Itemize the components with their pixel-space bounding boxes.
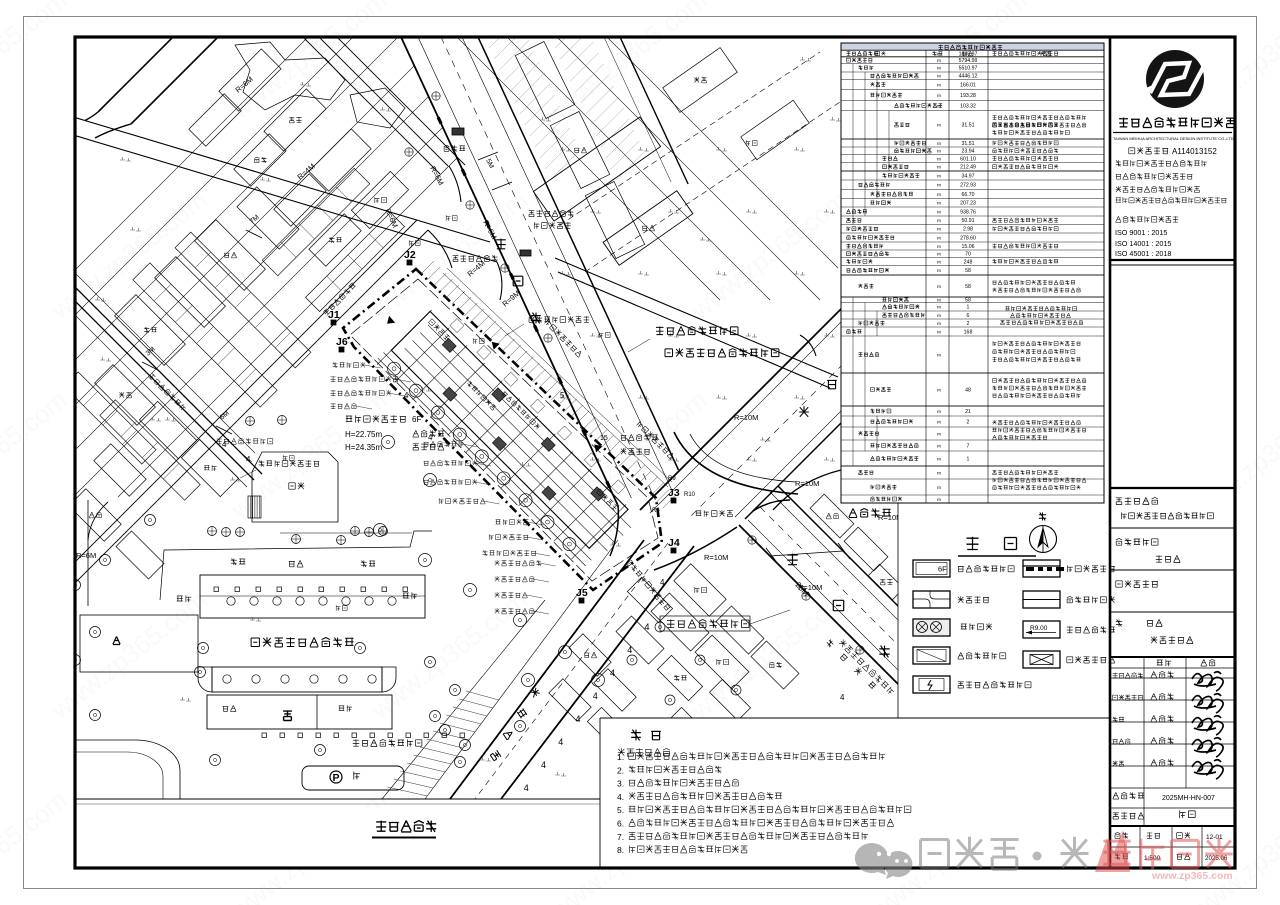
svg-text:31.51: 31.51 [962, 123, 975, 129]
svg-text:J6: J6 [336, 336, 348, 348]
svg-text:m: m [937, 150, 941, 155]
svg-text:4: 4 [428, 433, 433, 442]
svg-text:m: m [937, 166, 941, 171]
svg-text:m: m [937, 444, 941, 449]
svg-text:1.: 1. [617, 752, 624, 762]
svg-text:H=22.75m: H=22.75m [345, 430, 382, 439]
svg-text:272.93: 272.93 [960, 183, 976, 189]
svg-text:4: 4 [660, 578, 665, 587]
svg-text:2: 2 [967, 419, 970, 425]
svg-text:8.: 8. [617, 845, 624, 855]
svg-text:3.: 3. [617, 779, 624, 789]
svg-text:R9: R9 [668, 476, 676, 482]
svg-text:J3: J3 [668, 487, 680, 499]
svg-text:m: m [937, 236, 941, 241]
svg-text:193.28: 193.28 [960, 93, 976, 99]
svg-text:4: 4 [524, 783, 529, 793]
svg-text:m: m [937, 486, 941, 491]
svg-text:6F: 6F [938, 565, 947, 574]
svg-text:23.94: 23.94 [962, 149, 975, 155]
svg-text:4: 4 [541, 760, 546, 770]
svg-text:A114013152: A114013152 [1172, 147, 1217, 156]
svg-text:m: m [937, 498, 941, 503]
svg-text:6: 6 [967, 313, 970, 319]
svg-text:5794.99: 5794.99 [959, 58, 978, 64]
svg-text:m: m [937, 245, 941, 250]
svg-text:4: 4 [558, 737, 563, 747]
svg-text:m: m [937, 124, 941, 129]
svg-text:m: m [937, 322, 941, 327]
svg-text:2: 2 [967, 321, 970, 327]
svg-text:J4: J4 [668, 537, 680, 549]
svg-text:58: 58 [965, 298, 971, 304]
svg-text:58: 58 [965, 268, 971, 274]
svg-text:4.: 4. [617, 792, 624, 802]
svg-text:R=6M: R=6M [76, 551, 96, 560]
svg-text:212.49: 212.49 [960, 165, 976, 171]
svg-text:15: 15 [600, 435, 608, 442]
svg-text:207.23: 207.23 [960, 201, 976, 207]
svg-text:48: 48 [965, 387, 971, 393]
svg-text:m: m [937, 269, 941, 274]
svg-text:7.: 7. [617, 832, 624, 842]
svg-text:m: m [937, 420, 941, 425]
svg-text:1: 1 [967, 456, 970, 462]
svg-text:m: m [937, 75, 941, 80]
svg-text:P: P [332, 772, 339, 784]
svg-text:938.76: 938.76 [960, 209, 976, 215]
svg-text:4: 4 [222, 440, 227, 449]
svg-text:m: m [937, 285, 941, 290]
svg-text:R=10M: R=10M [704, 553, 728, 562]
svg-text:m: m [937, 59, 941, 64]
svg-text:R9.00: R9.00 [1030, 625, 1048, 632]
svg-text:m: m [937, 184, 941, 189]
svg-text:4: 4 [404, 391, 409, 400]
svg-text:m: m [937, 299, 941, 304]
svg-text:4: 4 [593, 691, 598, 701]
svg-text:J5: J5 [576, 587, 588, 599]
svg-text:m: m [937, 157, 941, 162]
svg-text:m: m [937, 432, 941, 437]
svg-text:21: 21 [965, 409, 971, 415]
svg-text:R=10M: R=10M [734, 413, 758, 422]
svg-text:m: m [937, 228, 941, 233]
svg-text:103.32: 103.32 [960, 103, 976, 109]
svg-text:4446.12: 4446.12 [959, 74, 978, 80]
svg-text:m: m [937, 210, 941, 215]
svg-text:m: m [937, 67, 941, 72]
svg-text:166.01: 166.01 [960, 82, 976, 88]
svg-text:66.70: 66.70 [962, 192, 975, 198]
svg-text:m: m [937, 142, 941, 147]
svg-text:m: m [937, 83, 941, 88]
svg-text:TAIWAN MEIHUA ARCHITECTURAL DE: TAIWAN MEIHUA ARCHITECTURAL DESIGN INSTI… [1113, 136, 1234, 141]
svg-text:4: 4 [840, 693, 845, 702]
svg-text:m: m [937, 471, 941, 476]
svg-text:5: 5 [560, 391, 565, 400]
svg-text:R10: R10 [684, 492, 696, 498]
svg-text:R=10M: R=10M [798, 583, 822, 592]
svg-text:m: m [937, 410, 941, 415]
svg-text:4: 4 [645, 622, 650, 632]
svg-text:31.51: 31.51 [962, 141, 975, 147]
svg-text:m: m [937, 260, 941, 265]
svg-text:6F: 6F [412, 415, 421, 424]
svg-text:m: m [937, 52, 941, 57]
svg-text:m: m [937, 457, 941, 462]
svg-text:1845.97: 1845.97 [959, 51, 978, 57]
svg-text:7: 7 [967, 443, 970, 449]
svg-text:ISO 45001 : 2018: ISO 45001 : 2018 [1115, 249, 1171, 258]
svg-text:601.10: 601.10 [960, 156, 976, 162]
svg-text:m: m [937, 104, 941, 109]
svg-text:58: 58 [965, 284, 971, 290]
svg-text:R6: R6 [652, 508, 660, 514]
svg-text:2025MH-HN-007: 2025MH-HN-007 [1162, 795, 1215, 802]
svg-text:15.06: 15.06 [962, 244, 975, 250]
svg-text:6.: 6. [617, 819, 624, 829]
svg-text:2.: 2. [617, 765, 624, 775]
svg-text:m: m [937, 253, 941, 258]
svg-text:4: 4 [246, 455, 251, 464]
svg-text:5.: 5. [617, 805, 624, 815]
svg-text:1: 1 [967, 305, 970, 311]
svg-text:R=10M: R=10M [795, 479, 819, 488]
svg-text:m: m [937, 202, 941, 207]
svg-text:m: m [937, 94, 941, 99]
svg-text:ISO 9001 : 2015: ISO 9001 : 2015 [1115, 228, 1167, 237]
svg-text:J1: J1 [328, 309, 340, 321]
svg-text:ISO 14001 : 2015: ISO 14001 : 2015 [1115, 239, 1171, 248]
svg-text:m: m [937, 193, 941, 198]
svg-text:m: m [937, 353, 941, 358]
svg-text:m: m [937, 330, 941, 335]
svg-text:www.zp365.com: www.zp365.com [1151, 870, 1233, 882]
svg-text:m: m [937, 174, 941, 179]
svg-text:248: 248 [964, 259, 973, 265]
svg-text:5510.97: 5510.97 [959, 66, 978, 72]
svg-text:m: m [937, 306, 941, 311]
svg-text:278.60: 278.60 [960, 235, 976, 241]
svg-text:m: m [937, 219, 941, 224]
svg-text:m: m [937, 388, 941, 393]
svg-text:H=24.35m: H=24.35m [345, 443, 382, 452]
svg-text:50.91: 50.91 [962, 218, 975, 224]
svg-text:m: m [937, 314, 941, 319]
svg-text:34.97: 34.97 [962, 173, 975, 179]
svg-text:2.98: 2.98 [963, 227, 973, 233]
svg-text:168: 168 [964, 329, 973, 335]
svg-text:70: 70 [965, 252, 971, 258]
svg-text:J2: J2 [404, 249, 416, 261]
